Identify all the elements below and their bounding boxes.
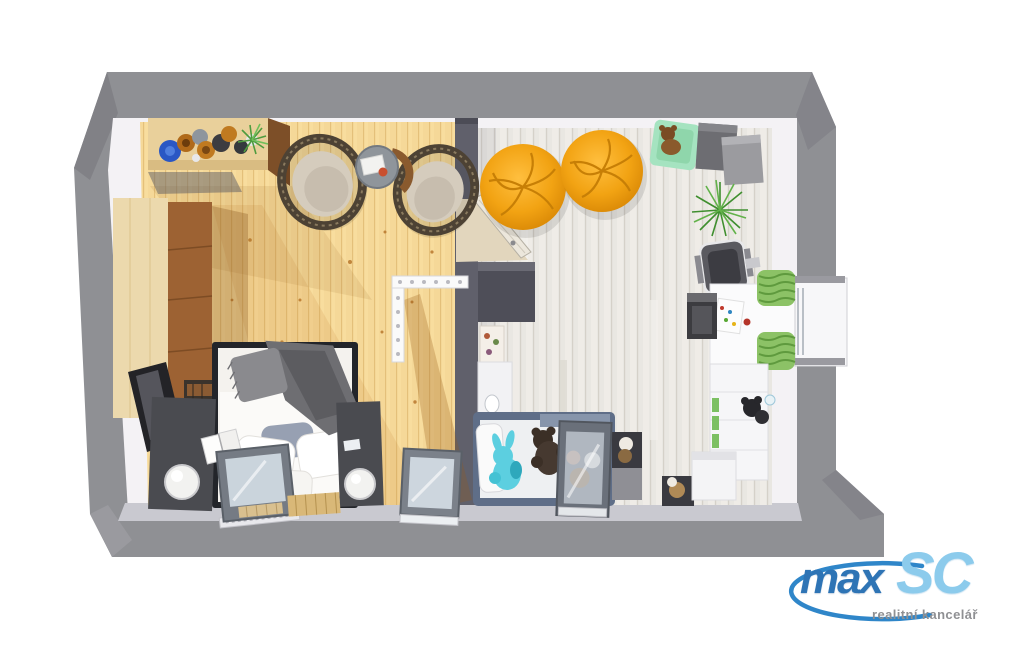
- storage-cube: [721, 135, 763, 186]
- curtain-top: [757, 270, 795, 306]
- roof-window: [556, 421, 611, 517]
- logo-tagline: realitní kancelář: [872, 607, 978, 622]
- real-estate-floorplan-image: max SC realitní kancelář: [0, 0, 1024, 653]
- maxsc-logo: max SC realitní kancelář: [770, 548, 1022, 648]
- poster: [480, 326, 504, 362]
- wood-slat-mat: [287, 492, 340, 517]
- dark-wardrobe: [478, 262, 535, 322]
- sphere-lamp: [165, 465, 199, 499]
- white-storage-box: [692, 452, 736, 500]
- roof-window: [212, 444, 300, 528]
- computer-tower: [687, 293, 717, 339]
- logo-text-max: max: [800, 554, 882, 604]
- nightstand: [336, 401, 384, 506]
- roof-window: [400, 449, 462, 526]
- sphere-lamp: [345, 469, 375, 499]
- logo-text-sc: SC: [896, 540, 971, 607]
